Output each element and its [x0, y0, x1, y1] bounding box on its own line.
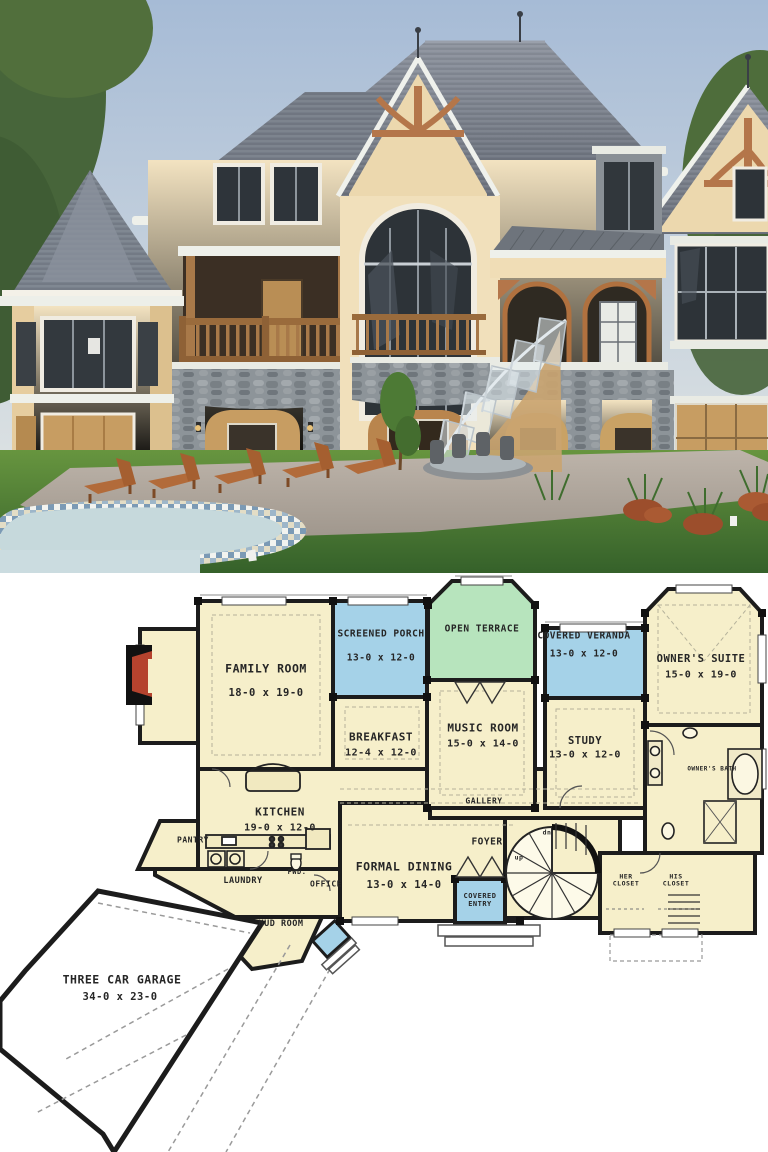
room-breakfast-area [333, 697, 430, 769]
room-suite-area [645, 589, 762, 725]
upper-window-block [592, 146, 666, 238]
floor-plan-drawing [0, 573, 768, 1152]
pin-image: FAMILY ROOM 18-0 x 19-0 SCREENED PORCH 1… [0, 0, 768, 1152]
room-screened-porch-area [333, 601, 427, 697]
room-study-area [545, 698, 645, 808]
closets-block [600, 853, 755, 933]
room-garage-area [0, 891, 262, 1152]
house-exterior-photo [0, 0, 768, 573]
powder-fixtures [291, 854, 301, 870]
room-covered-veranda-area [545, 628, 645, 698]
first-floor-plan: FAMILY ROOM 18-0 x 19-0 SCREENED PORCH 1… [0, 573, 768, 1152]
room-covered-entry-area [455, 879, 505, 923]
room-pantry-area [138, 821, 198, 869]
house-exterior-rendering [0, 0, 768, 573]
front-steps [322, 925, 540, 975]
room-family-area [198, 601, 333, 769]
room-open-terrace-area [428, 581, 535, 680]
fireplace [126, 645, 153, 705]
rear-terrace-edge [610, 935, 702, 961]
